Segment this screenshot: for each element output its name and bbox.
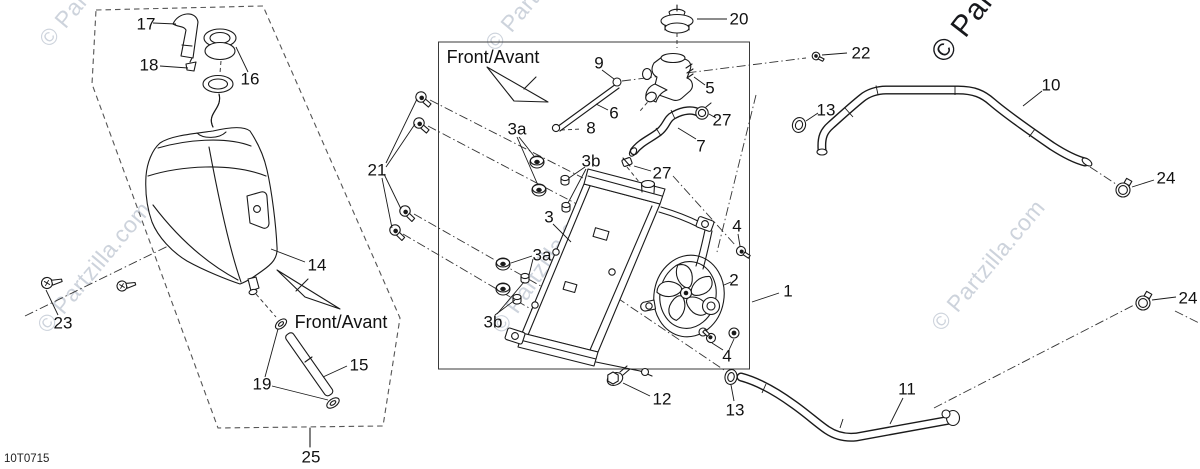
part-label-22: 22 bbox=[852, 45, 871, 62]
part-label-4-bottom: 4 bbox=[722, 348, 731, 365]
part-label-23: 23 bbox=[54, 315, 73, 332]
filler-elbow-17 bbox=[173, 14, 198, 58]
part-label-3a-top: 3a bbox=[508, 121, 527, 138]
hose-clamp-18 bbox=[186, 58, 196, 71]
coolant-tank bbox=[146, 76, 277, 296]
part-label-4-top: 4 bbox=[732, 218, 741, 235]
clamp-24-top bbox=[1116, 178, 1132, 197]
part-label-12: 12 bbox=[653, 391, 672, 408]
part-label-3b-bottom: 3b bbox=[484, 314, 503, 331]
part-label-24-bottom: 24 bbox=[1179, 290, 1198, 307]
part-label-11: 11 bbox=[898, 381, 916, 398]
part-label-3b-top: 3b bbox=[582, 153, 601, 170]
part-label-8: 8 bbox=[586, 120, 595, 137]
clamp-24-bottom bbox=[1136, 291, 1152, 310]
part-label-27-top: 27 bbox=[713, 112, 732, 129]
part-label-3a-bottom: 3a bbox=[533, 247, 552, 264]
part-label-1: 1 bbox=[783, 283, 792, 300]
front-avant-label-center: Front/Avant bbox=[447, 48, 540, 66]
overflow-tube-15 bbox=[284, 331, 334, 397]
part-label-17: 17 bbox=[137, 16, 156, 33]
part-label-16: 16 bbox=[241, 71, 260, 88]
part-label-13-bottom: 13 bbox=[726, 402, 745, 419]
part-label-20: 20 bbox=[730, 11, 749, 28]
part-label-25: 25 bbox=[302, 449, 321, 466]
clamp-13-bottom bbox=[724, 369, 738, 386]
part-label-24-top: 24 bbox=[1157, 170, 1176, 187]
screws-23 bbox=[40, 274, 136, 292]
rod-end-8 bbox=[552, 124, 559, 131]
part-label-14: 14 bbox=[308, 257, 327, 274]
front-avant-label-left: Front/Avant bbox=[295, 313, 388, 331]
part-label-5: 5 bbox=[705, 80, 714, 97]
part-label-15: 15 bbox=[350, 357, 369, 374]
hose-10 bbox=[817, 86, 1093, 168]
hose-7 bbox=[628, 110, 699, 157]
fitting-27-mid bbox=[622, 157, 633, 167]
part-label-9: 9 bbox=[594, 55, 603, 72]
clamp-13-right bbox=[791, 116, 807, 134]
part-label-10: 10 bbox=[1042, 77, 1061, 94]
rod-end-9 bbox=[613, 78, 621, 86]
part-label-27-mid: 27 bbox=[653, 165, 672, 182]
parts-diagram: © Partzilla.com © Partzilla.com © Partzi… bbox=[0, 0, 1200, 469]
part-label-19: 19 bbox=[253, 376, 272, 393]
part-label-18: 18 bbox=[140, 57, 159, 74]
cap-rings-16 bbox=[204, 29, 236, 60]
clamp-27-top bbox=[696, 103, 711, 119]
front-direction-arrow-center bbox=[487, 67, 548, 102]
part-label-7: 7 bbox=[696, 138, 705, 155]
radiator-cap-20 bbox=[661, 5, 693, 33]
filler-neck-5 bbox=[643, 54, 694, 104]
part-label-2: 2 bbox=[729, 272, 738, 289]
part-label-13-right: 13 bbox=[817, 102, 836, 119]
drawing-code: 10T0715 bbox=[4, 453, 49, 465]
cooling-fan-2 bbox=[641, 230, 731, 342]
mount-grommets-3a bbox=[496, 156, 546, 295]
part-label-3: 3 bbox=[544, 209, 553, 226]
part-label-21: 21 bbox=[368, 162, 387, 179]
front-direction-arrow-left bbox=[277, 270, 340, 309]
hose-11 bbox=[741, 377, 960, 437]
part-label-6: 6 bbox=[609, 105, 618, 122]
screw-22 bbox=[812, 52, 825, 62]
